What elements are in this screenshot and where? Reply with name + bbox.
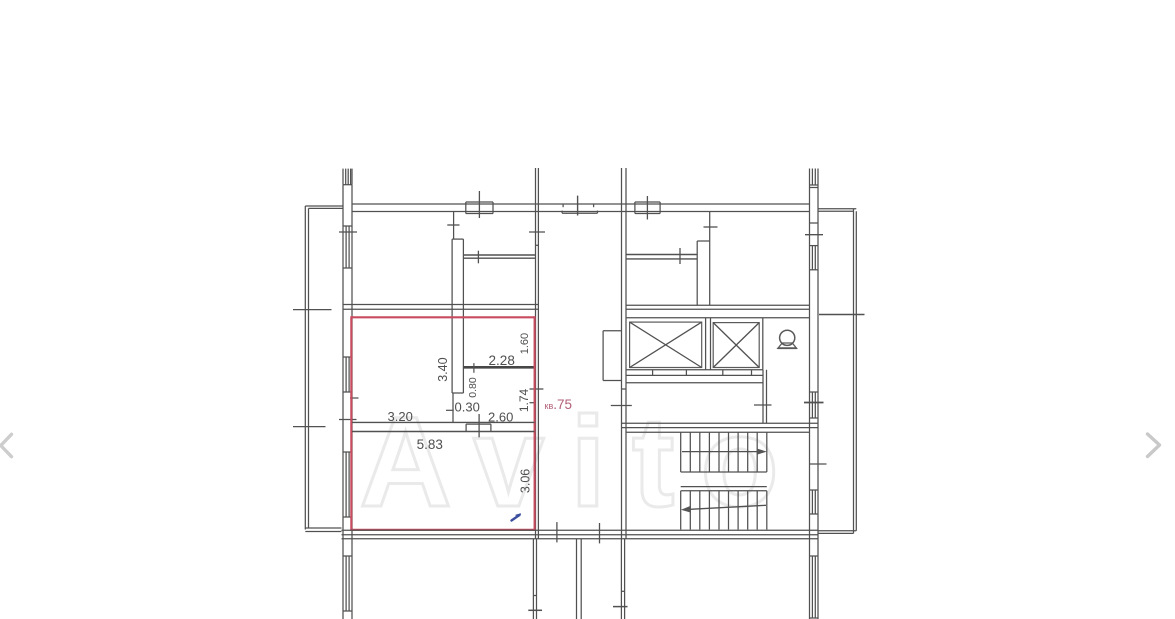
- svg-text:1.74: 1.74: [517, 388, 531, 412]
- svg-text:3.20: 3.20: [388, 409, 413, 424]
- svg-text:0.80: 0.80: [467, 377, 479, 398]
- svg-text:3.40: 3.40: [436, 357, 450, 381]
- svg-text:3.06: 3.06: [519, 469, 533, 493]
- svg-text:2.60: 2.60: [488, 410, 513, 425]
- svg-text:0.30: 0.30: [455, 400, 480, 415]
- svg-text:5.83: 5.83: [417, 437, 443, 452]
- svg-text:2.28: 2.28: [489, 353, 515, 368]
- svg-text:1.60: 1.60: [519, 333, 531, 354]
